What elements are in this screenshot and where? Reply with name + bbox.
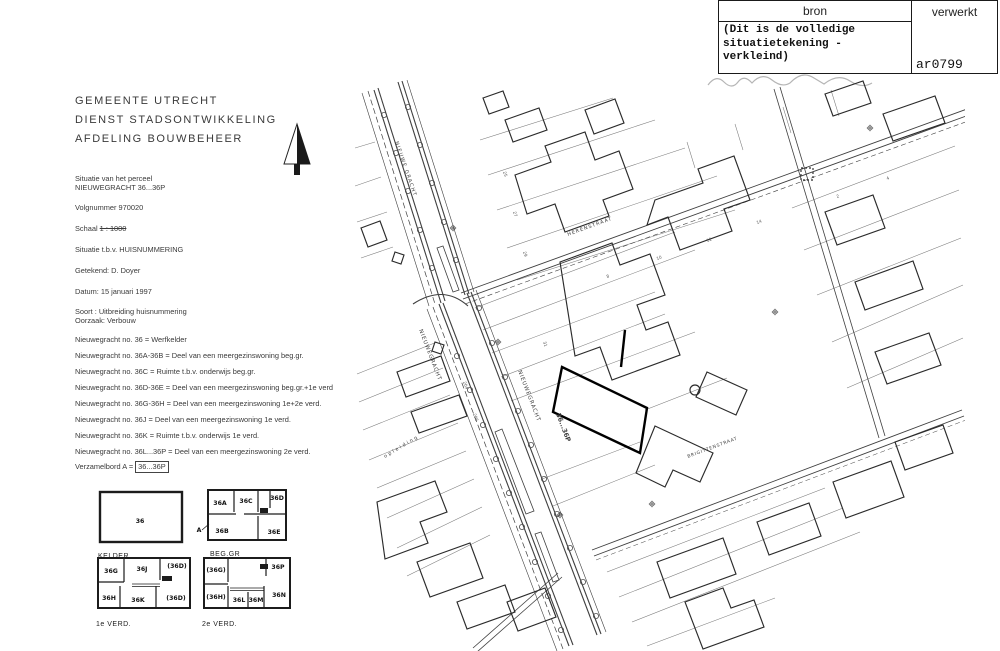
house-number: 25 [502,171,509,178]
room-label: 36P [271,564,285,571]
house-number: 2 [836,193,841,199]
floorplan-verd2: (36G) 36P (36H) 36L 36M 36N 2e VERD. [202,556,294,628]
verwerkt-column-header: verwerkt [911,1,997,22]
entrance-annotation: A [197,527,202,534]
room-label: (36G) [206,567,226,574]
letterhead-line-3: AFDELING BOUWBEHEER [75,130,277,149]
floorplan-verd1-title: 1e VERD. [96,621,194,628]
house-number: 27 [512,211,519,218]
volgnummer: Volgnummer 970020 [75,203,187,212]
situation-map: NIEUWE GRACHT NIEUWEGRACHT NIEUWEGRACHT … [355,80,965,651]
huisnummer-entry: Nieuwegracht no. 36 = Werfkelder [75,332,333,348]
bron-column-header: bron [719,1,911,22]
schaal-label: Schaal [75,224,98,233]
datum: Datum: 15 januari 1997 [75,287,187,296]
room-label: 36M [249,597,264,604]
verzamelbord-line: Verzamelbord A =36...36P [75,462,169,471]
oorzaak: Oorzaak: Verbouw [75,316,187,325]
letterhead: GEMEENTE UTRECHT DIENST STADSONTWIKKELIN… [75,92,277,149]
house-number: 31 [542,341,549,348]
house-number: 29 [522,251,529,258]
room-label: 36C [239,498,253,505]
street-label-nieuwegracht-west: NIEUWEGRACHT [417,329,442,382]
parcel-boundary-lines [355,90,963,646]
schaal-line: Schaal 1 : 1000 [75,224,187,233]
floorplan-verd2-title: 2e VERD. [202,621,294,628]
bron-note: (Dit is de volledige situatietekening - … [719,22,911,73]
room-label: 36G [104,568,118,575]
street-lines [362,80,965,651]
huisnummer-entry: Nieuwegracht no. 36G-36H = Deel van een … [75,396,333,412]
room-label: 36H [102,595,116,602]
soort: Soort : Uitbreiding huisnummering [75,307,187,316]
verzamelbord-value: 36...36P [135,461,169,473]
target-parcel-extension [621,330,625,367]
room-label: 36N [272,592,286,599]
house-number: 8 [606,273,611,279]
house-number: 14 [756,218,763,225]
area-label-opleiding: opleiding [383,434,420,460]
street-label-brigittenstraat: BRIGITTENSTRAAT [687,436,739,460]
floorplan-verd1: 36G 36J (36D) 36H 36K (36D) 1e VERD. [96,556,194,628]
huisnummer-entry: Nieuwegracht no. 36C = Ruimte t.b.v. ond… [75,364,333,380]
building-outlines [361,81,953,649]
street-label-nieuwegracht-east: NIEUWEGRACHT [516,370,541,423]
document-details: Situatie van het perceel NIEUWEGRACHT 36… [75,174,187,325]
room-label: 36B [215,528,229,535]
huisnummer-list: Nieuwegracht no. 36 = Werfkelder Nieuweg… [75,332,333,460]
verzamelbord-label: Verzamelbord A = [75,462,133,471]
floorplan-beggr-drawing: 36A 36C 36D 36B 36E A [196,486,290,544]
room-label: 36E [268,529,281,536]
floorplan-verd1-drawing: 36G 36J (36D) 36H 36K (36D) [96,556,194,614]
house-number: 206 [472,413,480,423]
room-label: 36 [136,518,145,525]
house-number: 12 [706,236,713,243]
floorplan-kelder-drawing: 36 [98,490,186,546]
room-label: 36D [270,495,284,502]
north-arrow-icon [281,122,313,178]
room-label: 36K [131,597,145,604]
situatie-tbv: Situatie t.b.v. HUISNUMMERING [75,245,187,254]
map-labels: NIEUWE GRACHT NIEUWEGRACHT NIEUWEGRACHT … [383,141,890,460]
room-label: 36L [233,597,246,604]
room-label: (36H) [206,594,226,601]
situatie-value: NIEUWEGRACHT 36...36P [75,183,187,192]
situatie-label: Situatie van het perceel [75,174,187,183]
huisnummer-entry: Nieuwegracht no. 36L...36P = Deel van ee… [75,444,333,460]
huisnummer-entry: Nieuwegracht no. 36A-36B = Deel van een … [75,348,333,364]
letterhead-line-2: DIENST STADSONTWIKKELING [75,111,277,130]
room-label: 36A [213,500,227,507]
getekend: Getekend: D. Doyer [75,266,187,275]
floorplan-verd2-drawing: (36G) 36P (36H) 36L 36M 36N [202,556,294,614]
verwerkt-value: ar0799 [911,22,997,73]
scanned-document-page: bron verwerkt (Dit is de volledige situa… [0,0,1000,651]
schaal-value: 1 : 1000 [100,224,127,233]
header-table: bron verwerkt (Dit is de volledige situa… [718,0,998,74]
room-label: (36D) [166,595,186,602]
floorplan-beggr: 36A 36C 36D 36B 36E A BEG.GR [196,486,290,558]
room-label: 36J [137,566,148,573]
survey-marks [450,125,873,518]
house-number: 4 [886,175,891,181]
huisnummer-entry: Nieuwegracht no. 36K = Ruimte t.b.v. ond… [75,428,333,444]
parcel-number-label: 36...36P [554,412,572,443]
huisnummer-entry: Nieuwegracht no. 36D-36E = Deel van een … [75,380,333,396]
room-label: (36D) [167,563,187,570]
house-number: 10 [656,254,663,261]
letterhead-line-1: GEMEENTE UTRECHT [75,92,277,111]
huisnummer-entry: Nieuwegracht no. 36J = Deel van een meer… [75,412,333,428]
floorplan-kelder: 36 KELDER [98,490,186,560]
